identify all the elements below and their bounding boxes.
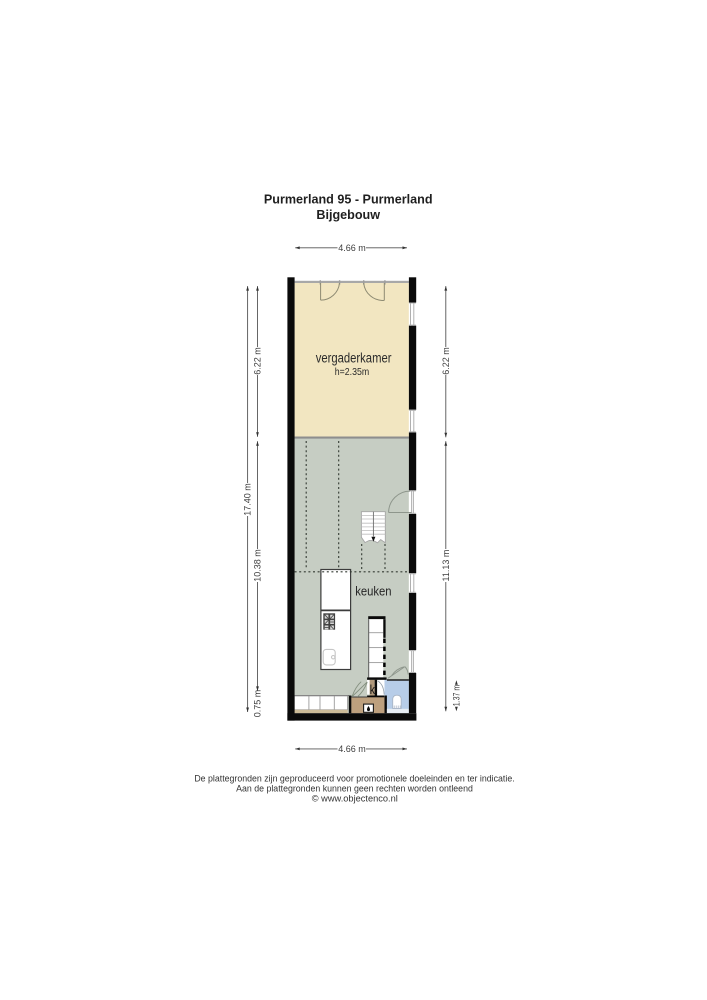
svg-text:k: k: [370, 683, 376, 697]
svg-text:Purmerland 95 - Purmerland: Purmerland 95 - Purmerland: [264, 193, 433, 207]
svg-text:Bijgebouw: Bijgebouw: [316, 208, 380, 222]
svg-text:11.13 m: 11.13 m: [441, 550, 451, 582]
svg-text:De plattegronden zijn geproduc: De plattegronden zijn geproduceerd voor …: [194, 774, 514, 784]
svg-text:6.22 m: 6.22 m: [441, 347, 451, 375]
svg-text:h=2.35m: h=2.35m: [335, 366, 370, 378]
svg-text:1.37 m: 1.37 m: [451, 685, 461, 707]
svg-text:4.66 m: 4.66 m: [338, 744, 366, 754]
svg-text:6.22 m: 6.22 m: [253, 347, 263, 375]
svg-text:10.38 m: 10.38 m: [253, 549, 263, 582]
svg-text:vergaderkamer: vergaderkamer: [316, 351, 392, 366]
svg-text:0.75 m: 0.75 m: [253, 690, 263, 718]
svg-text:17.40 m: 17.40 m: [243, 483, 253, 516]
svg-text:© www.objectenco.nl: © www.objectenco.nl: [312, 794, 398, 804]
svg-text:keuken: keuken: [355, 584, 391, 598]
svg-text:Aan de plattegronden kunnen ge: Aan de plattegronden kunnen geen rechten…: [236, 784, 473, 794]
svg-text:4.66 m: 4.66 m: [338, 243, 366, 253]
